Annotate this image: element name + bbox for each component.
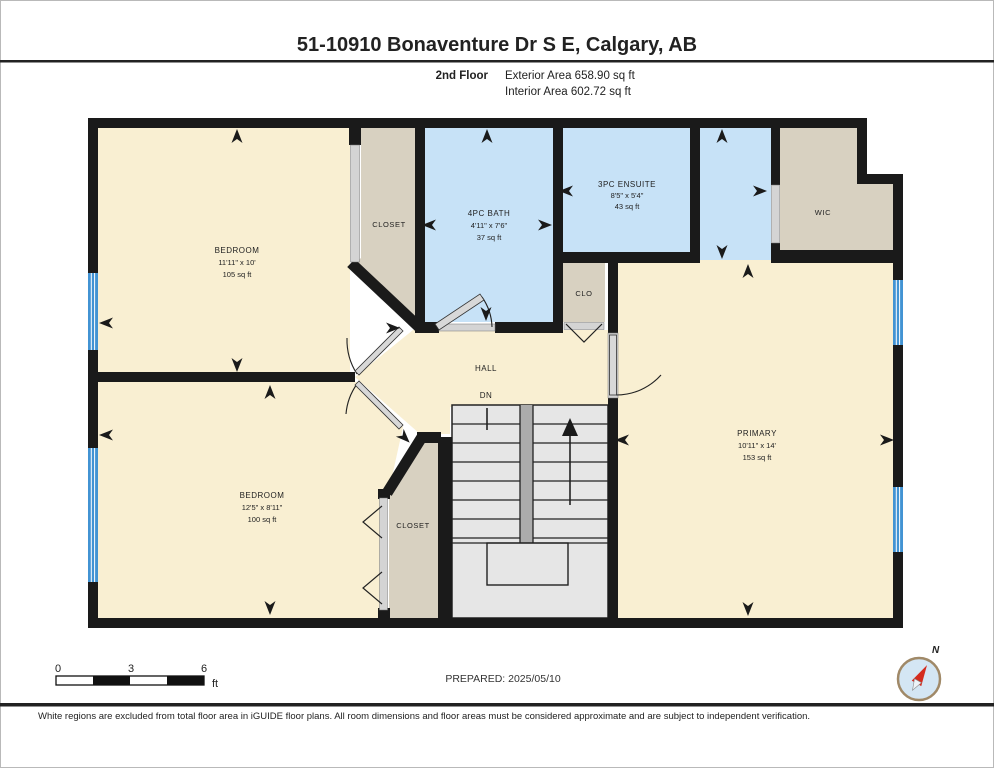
bath-dims: 4'11" x 7'6": [471, 221, 508, 230]
stairs: [452, 405, 608, 618]
bedroom2-dims: 12'5" x 8'11": [242, 503, 283, 512]
bath-name: 4PC BATH: [468, 209, 511, 218]
bedroom2-area: 100 sq ft: [248, 515, 278, 524]
scale-unit: ft: [212, 678, 218, 690]
stairs-divider: [520, 405, 533, 543]
exterior-area-label: Exterior Area 658.90 sq ft: [505, 70, 636, 82]
bedroom1-name: BEDROOM: [215, 246, 260, 255]
compass-north-label: N: [932, 645, 940, 656]
hall-name: HALL: [475, 364, 497, 373]
closet2-name: CLOSET: [396, 521, 430, 530]
door-wic-slider: [772, 185, 780, 243]
footer-divider: [0, 703, 994, 707]
window-bedroom2-left: [88, 448, 98, 582]
primary-area: 153 sq ft: [743, 453, 773, 462]
clo-name: CLO: [575, 289, 592, 298]
stairs-dn-label: DN: [480, 391, 493, 400]
primary-name: PRIMARY: [737, 429, 777, 438]
floorplan-page: 51-10910 Bonaventure Dr S E, Calgary, AB…: [0, 0, 994, 768]
room-ensuite: [563, 128, 690, 252]
wic-name: WIC: [815, 208, 831, 217]
prepared-date: PREPARED: 2025/05/10: [445, 673, 561, 685]
floorplan-canvas: 51-10910 Bonaventure Dr S E, Calgary, AB…: [0, 0, 994, 768]
room-ensuite-corridor: [700, 128, 771, 263]
bedroom1-area: 105 sq ft: [223, 270, 253, 279]
scale-mid: 3: [128, 663, 134, 675]
page-title: 51-10910 Bonaventure Dr S E, Calgary, AB: [297, 34, 697, 56]
bedroom2-name: BEDROOM: [240, 491, 285, 500]
interior-area-label: Interior Area 602.72 sq ft: [505, 86, 632, 98]
window-primary-right-bottom: [893, 487, 903, 552]
header-divider: [0, 60, 994, 63]
primary-dims: 10'11" x 14': [738, 441, 776, 450]
room-primary: [618, 260, 893, 618]
room-bedroom-2: [98, 382, 403, 618]
scale-start: 0: [55, 663, 61, 675]
bath-area: 37 sq ft: [477, 233, 503, 242]
closet1-name: CLOSET: [372, 220, 406, 229]
window-primary-right-top: [893, 280, 903, 345]
floor-label: 2nd Floor: [436, 70, 489, 82]
ensuite-name: 3PC ENSUITE: [598, 180, 656, 189]
scale-end: 6: [201, 663, 207, 675]
window-bedroom1-left: [88, 273, 98, 350]
disclaimer-text: White regions are excluded from total fl…: [38, 711, 810, 722]
ensuite-area: 43 sq ft: [615, 202, 641, 211]
bedroom1-dims: 11'11" x 10': [218, 258, 256, 267]
ensuite-dims: 8'5" x 5'4": [611, 191, 644, 200]
door-closet-1-slider: [351, 145, 360, 262]
